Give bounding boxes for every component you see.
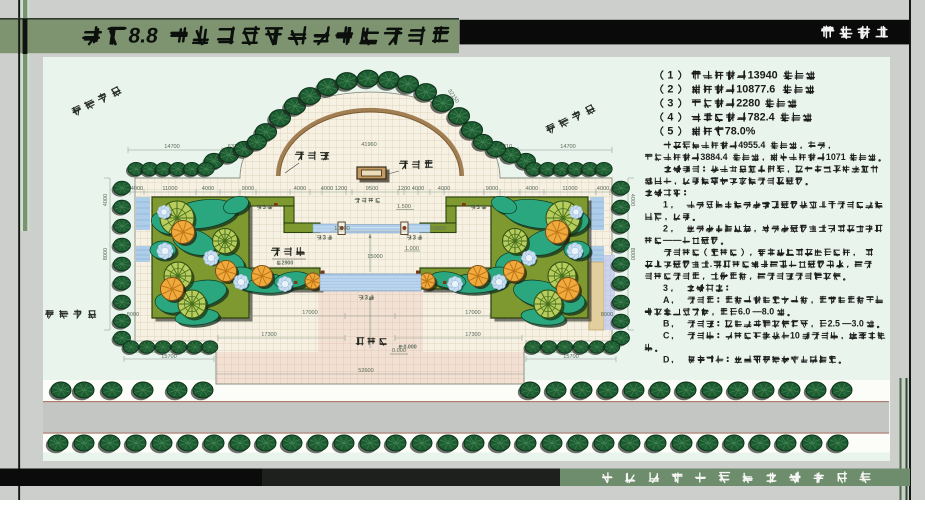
svg-text:11000: 11000 [162,186,177,192]
svg-text:1.500: 1.500 [397,204,411,210]
svg-text:10877.6: 10877.6 [736,84,775,96]
svg-text:3.0: 3.0 [852,319,864,329]
svg-text:1200 4000: 1200 4000 [398,186,424,192]
svg-text:10000: 10000 [430,226,446,232]
svg-text:9500: 9500 [366,186,378,192]
svg-text:4000: 4000 [597,186,609,192]
svg-text:1: 1 [667,70,673,82]
svg-text:4000 1200: 4000 1200 [321,186,347,192]
svg-text:C: C [663,331,670,341]
svg-text:8000: 8000 [601,312,613,318]
svg-text:D: D [663,354,670,364]
svg-text:17300: 17300 [465,332,481,338]
svg-text:15000: 15000 [367,254,383,260]
svg-text:8.8: 8.8 [127,25,160,48]
svg-text:52600: 52600 [358,368,374,374]
svg-text:2.5: 2.5 [828,319,840,329]
svg-text:3884.4: 3884.4 [700,152,727,162]
svg-text:17300: 17300 [261,332,277,338]
svg-text:17000: 17000 [465,310,481,316]
svg-text:8000: 8000 [629,248,635,260]
svg-text:1: 1 [663,200,668,210]
svg-text:4000: 4000 [131,186,143,192]
svg-text:41960: 41960 [361,142,377,148]
svg-text:4: 4 [667,112,673,124]
svg-text:8.0: 8.0 [762,307,774,317]
svg-text:10: 10 [790,331,800,341]
svg-text:0.000: 0.000 [404,345,417,351]
svg-text:15700: 15700 [161,354,177,360]
svg-text:10000: 10000 [334,226,350,232]
svg-text:4955.4: 4955.4 [738,140,765,150]
svg-text:6.0: 6.0 [738,307,750,317]
svg-text:2: 2 [663,223,668,233]
svg-text:9000: 9000 [486,186,498,192]
svg-text:.: . [710,259,712,269]
svg-text:13940: 13940 [748,70,778,82]
svg-text:2280: 2280 [736,98,760,110]
svg-text:4000: 4000 [629,194,635,206]
svg-text:9000: 9000 [242,186,254,192]
svg-text:782.4: 782.4 [748,112,775,124]
svg-text:A: A [663,295,670,305]
svg-text:3: 3 [663,283,668,293]
svg-text:4000: 4000 [103,194,109,206]
svg-text:4000: 4000 [294,186,306,192]
svg-text:B: B [663,319,669,329]
svg-text:8000: 8000 [103,248,109,260]
svg-text:14700: 14700 [560,144,576,150]
svg-text:4000: 4000 [526,186,538,192]
svg-text:17000: 17000 [302,310,318,316]
svg-text:4000: 4000 [438,186,450,192]
svg-text:14700: 14700 [164,144,180,150]
svg-text:4000: 4000 [202,186,214,192]
svg-text:15700: 15700 [563,354,579,360]
svg-text:78.0%: 78.0% [725,126,756,138]
svg-text:1071: 1071 [826,152,846,162]
svg-text:2900: 2900 [282,261,294,267]
svg-text:2: 2 [667,84,673,96]
svg-text:11000: 11000 [562,186,577,192]
svg-text:3: 3 [667,98,673,110]
svg-text:5: 5 [667,126,673,138]
